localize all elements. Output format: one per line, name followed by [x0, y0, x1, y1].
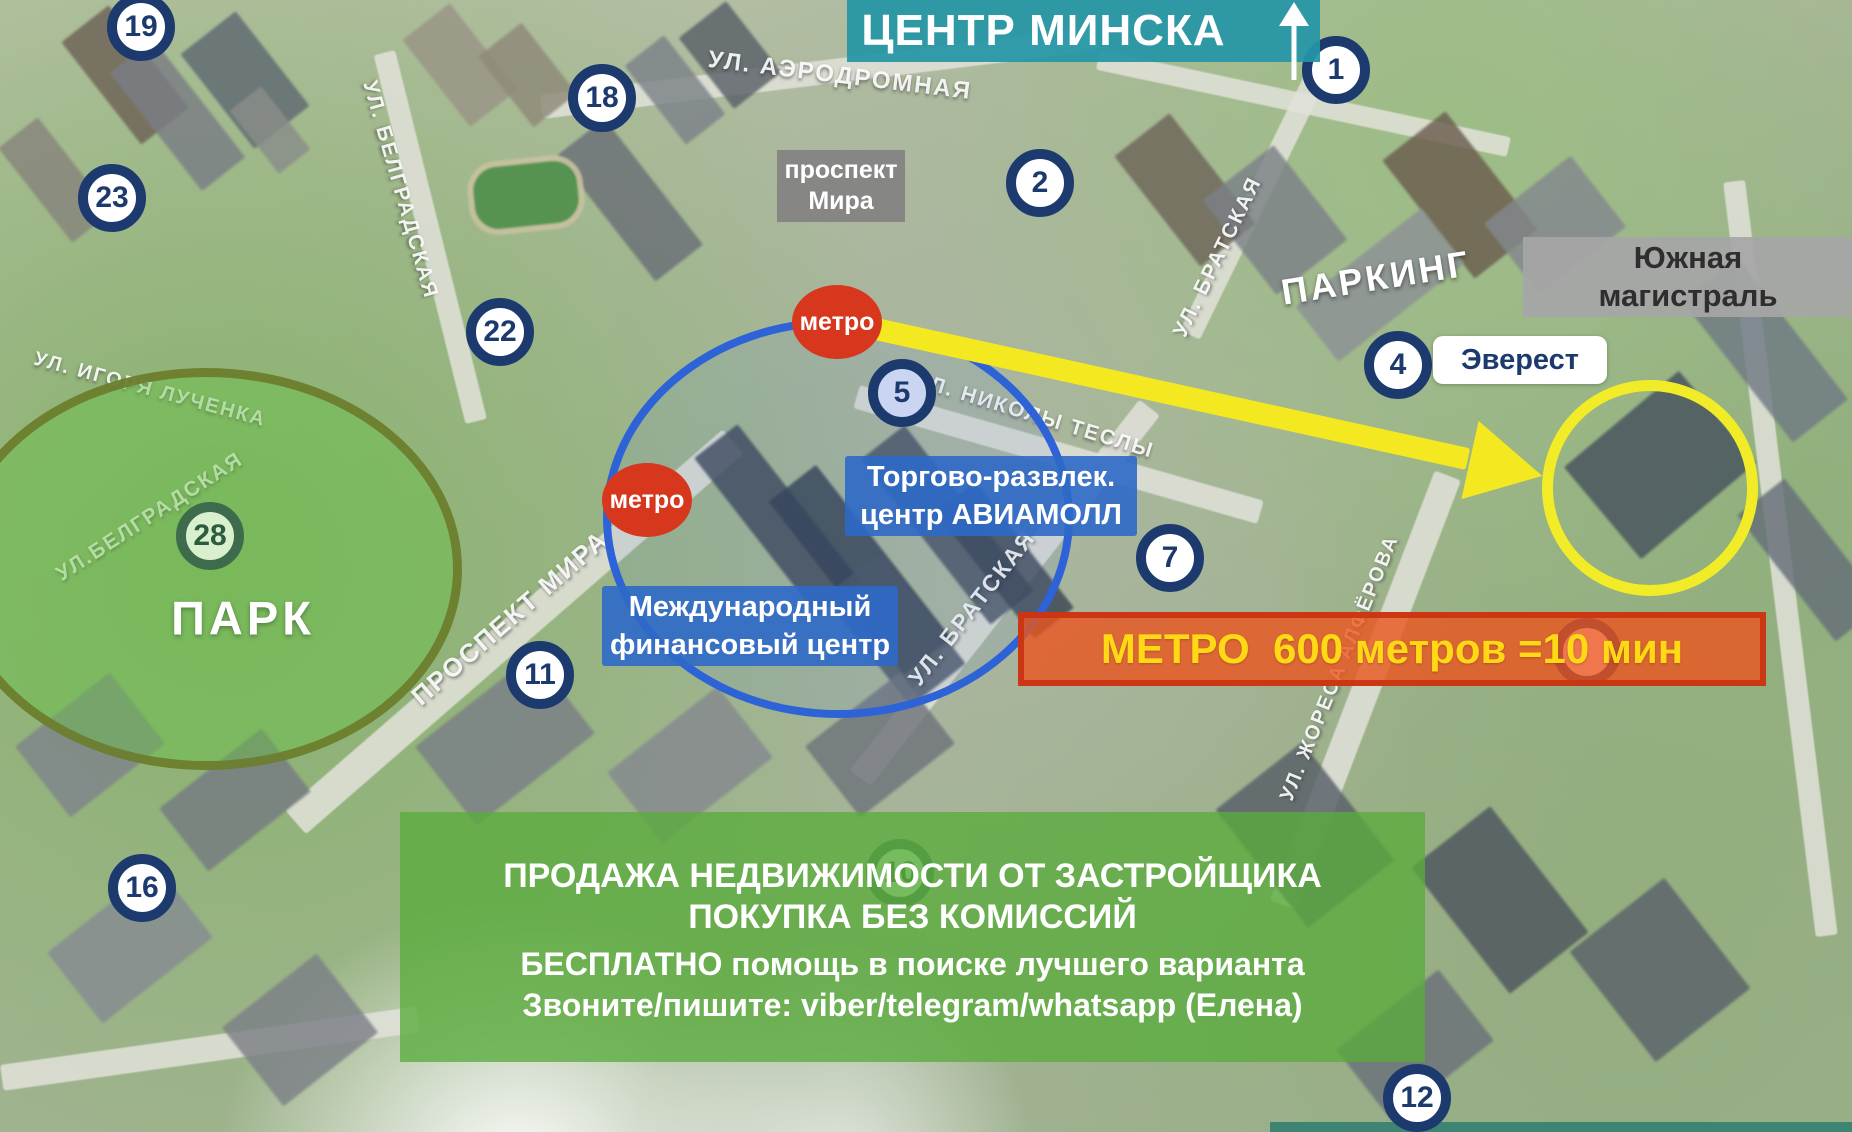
map-pin-circle: 22 — [466, 298, 534, 366]
north-arrow-icon — [1276, 2, 1312, 82]
south-highway-line2: магистраль — [1598, 277, 1777, 315]
prospekt-mira-line1: проспект — [785, 155, 898, 186]
map-pin-2: 2 — [1006, 149, 1074, 243]
map-pin-22: 22 — [466, 298, 534, 392]
promo-line-3: БЕСПЛАТНО помощь в поиске лучшего вариан… — [520, 944, 1304, 985]
prospekt-mira-line2: Мира — [808, 186, 873, 217]
map-pin-12: 12 — [1383, 1064, 1451, 1132]
south-highway-label: Южная магистраль — [1523, 237, 1852, 317]
map-pin-circle: 12 — [1383, 1064, 1451, 1132]
map-pin-23: 23 — [78, 164, 146, 258]
metro-badge-label: метро — [800, 308, 875, 337]
metro-badge-label: метро — [610, 486, 685, 515]
financial-center-line1: Международный — [602, 588, 898, 626]
map-pin-number: 12 — [1400, 1081, 1433, 1115]
aviamall-line1: Торгово-развлек. — [845, 458, 1137, 496]
map-pin-7: 7 — [1136, 524, 1204, 618]
promo-line-1: ПРОДАЖА НЕДВИЖИМОСТИ ОТ ЗАСТРОЙЩИКА — [503, 856, 1322, 897]
map-pin-circle: 11 — [506, 641, 574, 709]
map-pin-number: 4 — [1390, 348, 1407, 382]
map-pin-number: 28 — [193, 519, 226, 553]
map-pin-circle: 4 — [1364, 331, 1432, 399]
map-pin-number: 7 — [1162, 541, 1179, 575]
map-pin-circle: 16 — [108, 854, 176, 922]
map-pin-circle: 28 — [176, 502, 244, 570]
map-pin-number: 16 — [125, 871, 158, 905]
metro-distance-banner: МЕТРО 600 метров =10 мин — [1018, 612, 1766, 686]
map-pin-number: 5 — [894, 376, 911, 410]
minsk-aerial-map: УЛ. АЭРОДРОМНАЯУЛ. БЕЛГРАДСКАЯУЛ.БЕЛГРАД… — [0, 0, 1852, 1132]
south-highway-line1: Южная — [1634, 239, 1742, 277]
everest-label-text: Эверест — [1461, 344, 1579, 377]
aviamall-label: Торгово-развлек. центр АВИАМОЛЛ — [845, 456, 1137, 536]
city-center-banner: ЦЕНТР МИНСКА — [847, 0, 1320, 62]
financial-center-line2: финансовый центр — [602, 626, 898, 664]
promo-line-2: ПОКУПКА БЕЗ КОМИССИЙ — [688, 897, 1137, 938]
map-pin-circle: 5 — [868, 359, 936, 427]
map-pin-4: 4 — [1364, 331, 1432, 425]
map-pin-circle: 7 — [1136, 524, 1204, 592]
metro-distance-text: МЕТРО 600 метров =10 мин — [1101, 625, 1683, 673]
map-stadium — [464, 152, 587, 238]
promo-line-4: Звоните/пишите: viber/telegram/whatsapp … — [522, 985, 1302, 1026]
map-pin-5: 5 — [868, 359, 936, 453]
map-pin-circle: 19 — [107, 0, 175, 61]
metro-badge-2: метро — [602, 463, 692, 537]
prospekt-mira-label: проспект Мира — [777, 150, 905, 222]
map-pin-number: 23 — [95, 181, 128, 215]
everest-highlight-circle — [1542, 380, 1758, 596]
map-pin-number: 22 — [483, 315, 516, 349]
park-label: ПАРК — [171, 591, 315, 646]
map-pin-28: 28 — [176, 502, 244, 596]
aviamall-line2: центр АВИАМОЛЛ — [845, 496, 1137, 534]
map-pin-number: 11 — [524, 658, 556, 692]
map-pin-18: 18 — [568, 64, 636, 158]
map-pin-circle: 23 — [78, 164, 146, 232]
map-pin-11: 11 — [506, 641, 574, 735]
promo-banner: ПРОДАЖА НЕДВИЖИМОСТИ ОТ ЗАСТРОЙЩИКА ПОКУ… — [400, 812, 1425, 1062]
everest-label: Эверест — [1433, 336, 1607, 384]
map-water-strip — [1270, 1122, 1852, 1132]
map-pin-number: 1 — [1328, 53, 1345, 87]
map-pin-circle: 2 — [1006, 149, 1074, 217]
map-pin-circle: 18 — [568, 64, 636, 132]
financial-center-label: Международный финансовый центр — [602, 586, 898, 666]
metro-badge-1: метро — [792, 285, 882, 359]
city-center-banner-text: ЦЕНТР МИНСКА — [861, 6, 1225, 56]
map-pin-number: 2 — [1032, 166, 1049, 200]
map-pin-16: 16 — [108, 854, 176, 948]
map-pin-number: 18 — [585, 81, 618, 115]
map-pin-number: 19 — [124, 10, 157, 44]
map-pin-19: 19 — [107, 0, 175, 87]
